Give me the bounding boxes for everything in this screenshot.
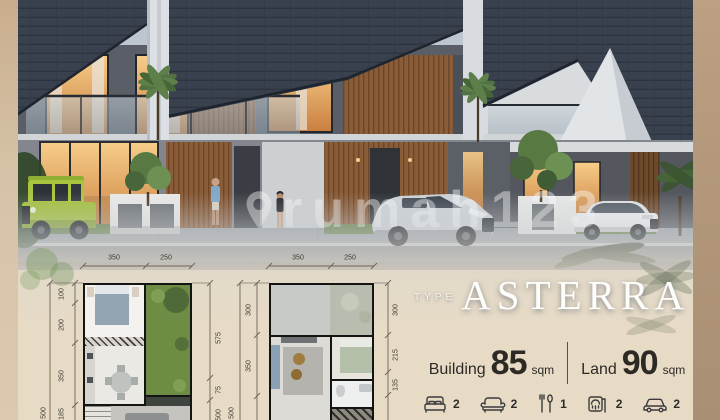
- right-margin-strip: [693, 0, 720, 420]
- building-value: 85: [491, 344, 527, 383]
- type-name: ASTERRA: [461, 275, 690, 316]
- dim-label: 75: [216, 386, 223, 394]
- toilet: [336, 385, 345, 397]
- dim-label: 100: [59, 288, 66, 300]
- pouf: [293, 353, 305, 365]
- dim-label: 350: [108, 255, 120, 262]
- amenities-row: 2 2 1 2: [422, 391, 680, 417]
- dim-label: 575: [216, 332, 223, 344]
- land-spec: Land 90 sqm: [581, 344, 685, 383]
- specs-row: Building 85 sqm Land 90 sqm: [424, 340, 690, 386]
- dining-icon: [537, 394, 555, 414]
- amenity-living-rooms: 2: [480, 394, 518, 414]
- terrace: [146, 397, 190, 406]
- dim-label: 350: [246, 360, 253, 372]
- amenity-count: 1: [560, 397, 567, 411]
- flyer-page: rumah123: [0, 0, 720, 420]
- watermark-text: rumah123: [282, 184, 608, 236]
- nightstand: [87, 287, 94, 297]
- amenity-count: 2: [511, 397, 518, 411]
- amenity-bedrooms: 2: [422, 394, 460, 414]
- floorplan-ground: [83, 283, 192, 420]
- dim-label: 300: [393, 304, 400, 316]
- nightstand: [132, 287, 139, 297]
- bed-icon: [422, 394, 448, 414]
- void: [271, 285, 330, 335]
- garden-tree: [163, 287, 189, 313]
- amenity-bathrooms: 2: [587, 394, 623, 414]
- land-label: Land: [581, 361, 617, 379]
- sink: [359, 384, 372, 392]
- pouf: [291, 369, 302, 380]
- building-unit: sqm: [532, 363, 555, 377]
- dim-label: 500: [216, 409, 223, 420]
- dim-label: 250: [344, 255, 356, 262]
- wardrobe-2: [332, 409, 374, 420]
- carport-car: [125, 413, 169, 420]
- dim-label: 135: [393, 379, 400, 391]
- dining-table: [110, 371, 132, 393]
- wardrobe: [85, 337, 146, 346]
- sofa: [271, 345, 280, 389]
- dim-label: 350: [59, 370, 66, 382]
- dim-label: 500: [41, 407, 48, 419]
- amenity-dining-rooms: 1: [537, 394, 567, 414]
- floorplan-upper: [269, 283, 374, 420]
- amenity-carports: 2: [642, 394, 680, 414]
- car-icon: [642, 394, 668, 414]
- shower-icon: [587, 394, 611, 414]
- type-label: TYPE: [414, 292, 456, 303]
- dim-label: 250: [160, 255, 172, 262]
- left-margin-strip: [0, 0, 18, 420]
- sofa-icon: [480, 394, 506, 414]
- dim-label: 215: [393, 349, 400, 361]
- building-label: Building: [429, 361, 486, 379]
- map-pin-icon: [244, 190, 274, 230]
- dim-label: 200: [59, 319, 66, 331]
- dim-label: 500: [229, 407, 236, 419]
- watermark: rumah123: [244, 184, 608, 236]
- amenity-count: 2: [616, 397, 623, 411]
- building-spec: Building 85 sqm: [429, 344, 554, 383]
- type-heading: TYPE ASTERRA: [412, 270, 690, 320]
- planter-left: [110, 194, 180, 234]
- amenity-count: 2: [673, 397, 680, 411]
- dim-label: 185: [59, 408, 66, 420]
- dim-label: 300: [246, 304, 253, 316]
- stairs: [85, 405, 111, 420]
- amenity-count: 2: [453, 397, 460, 411]
- dim-label: 350: [292, 255, 304, 262]
- specs-divider: [567, 342, 568, 384]
- land-value: 90: [622, 344, 658, 383]
- land-unit: sqm: [663, 363, 686, 377]
- tv-cabinet: [281, 337, 317, 343]
